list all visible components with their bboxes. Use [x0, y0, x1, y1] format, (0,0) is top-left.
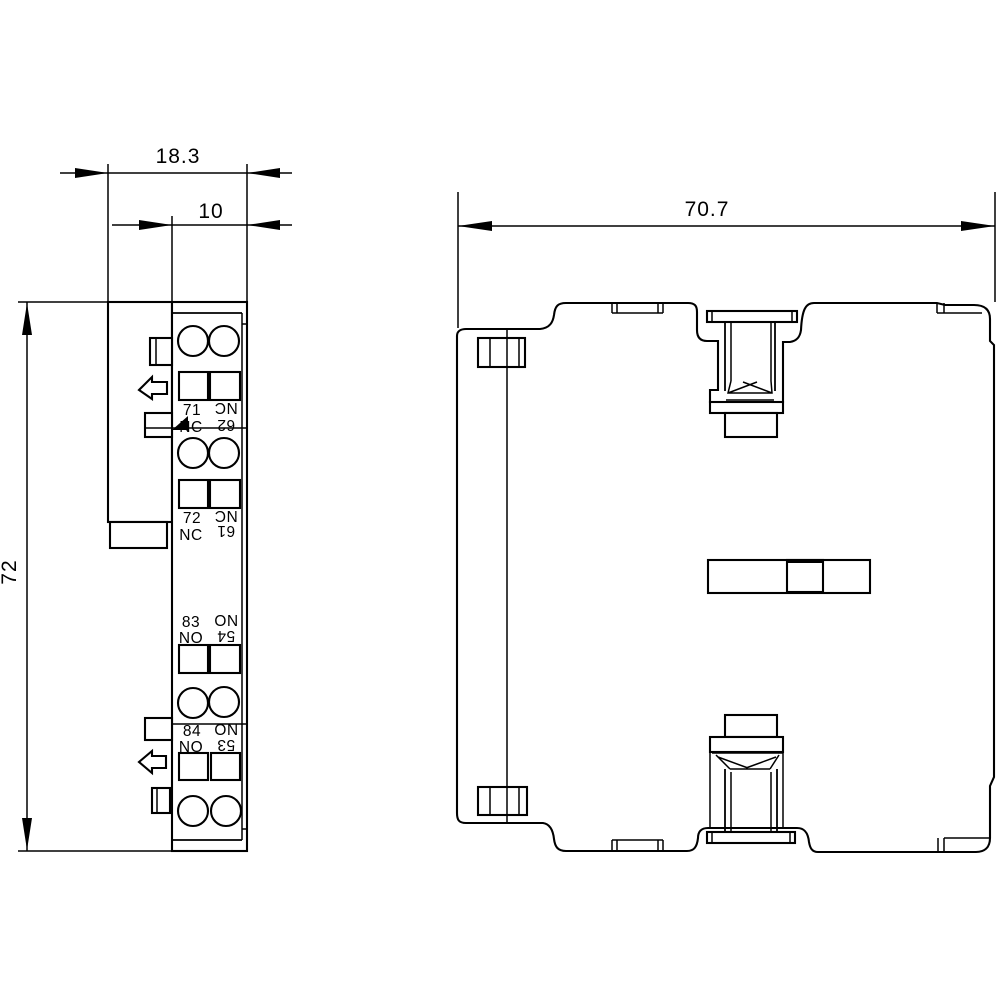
side-tab	[145, 413, 172, 437]
release-arrow-icon	[139, 751, 166, 773]
side-view: 18.3 10 72	[0, 145, 292, 851]
terminal-label-rotated: 61	[217, 522, 235, 539]
post-flange	[707, 832, 795, 843]
dimension-arrow	[247, 220, 280, 230]
dim-side-body: 10	[112, 200, 292, 302]
front-view: 70.7	[457, 192, 995, 852]
dimension-arrow	[75, 168, 108, 178]
dimension-arrow	[247, 168, 280, 178]
dim-side-body-label: 10	[198, 200, 223, 223]
side-plate-foot	[110, 522, 167, 548]
post-base	[710, 737, 783, 752]
post-base	[710, 402, 783, 413]
dim-side-height-label: 72	[0, 559, 21, 584]
side-tab	[152, 788, 170, 813]
dimension-drawing: 18.3 10 72	[0, 0, 1000, 1000]
dimension-arrow	[458, 221, 492, 231]
dimension-arrow	[22, 818, 32, 850]
terminal-label: NC	[179, 419, 202, 436]
post-cap	[707, 311, 797, 322]
dim-side-total-label: 18.3	[156, 145, 201, 168]
terminal-label-rotated: NO	[214, 720, 238, 737]
side-tab	[150, 338, 172, 365]
terminal-label: 71	[183, 402, 201, 419]
dim-front-width-label: 70.7	[685, 198, 730, 221]
post-foot	[725, 413, 777, 437]
terminal-label: NC	[179, 527, 202, 544]
side-tab	[145, 718, 172, 740]
dimension-arrow	[961, 221, 995, 231]
dimension-arrow	[139, 220, 172, 230]
terminal-label-rotated: NC	[214, 507, 237, 524]
screw-seat	[726, 381, 774, 400]
terminal-label-rotated: NO	[214, 611, 238, 628]
dimension-arrow	[22, 303, 32, 335]
terminal-label-rotated: 53	[217, 736, 235, 753]
terminal-label-rotated: 62	[217, 416, 235, 433]
terminal-label-rotated: 54	[217, 627, 235, 644]
terminal-label: 84	[183, 723, 201, 740]
post-foot	[725, 715, 777, 737]
drawing-canvas: 18.3 10 72	[0, 0, 1000, 1000]
terminal-label: 72	[183, 510, 201, 527]
terminal-label-rotated: NC	[214, 399, 237, 416]
terminal-label: 83	[182, 614, 200, 631]
